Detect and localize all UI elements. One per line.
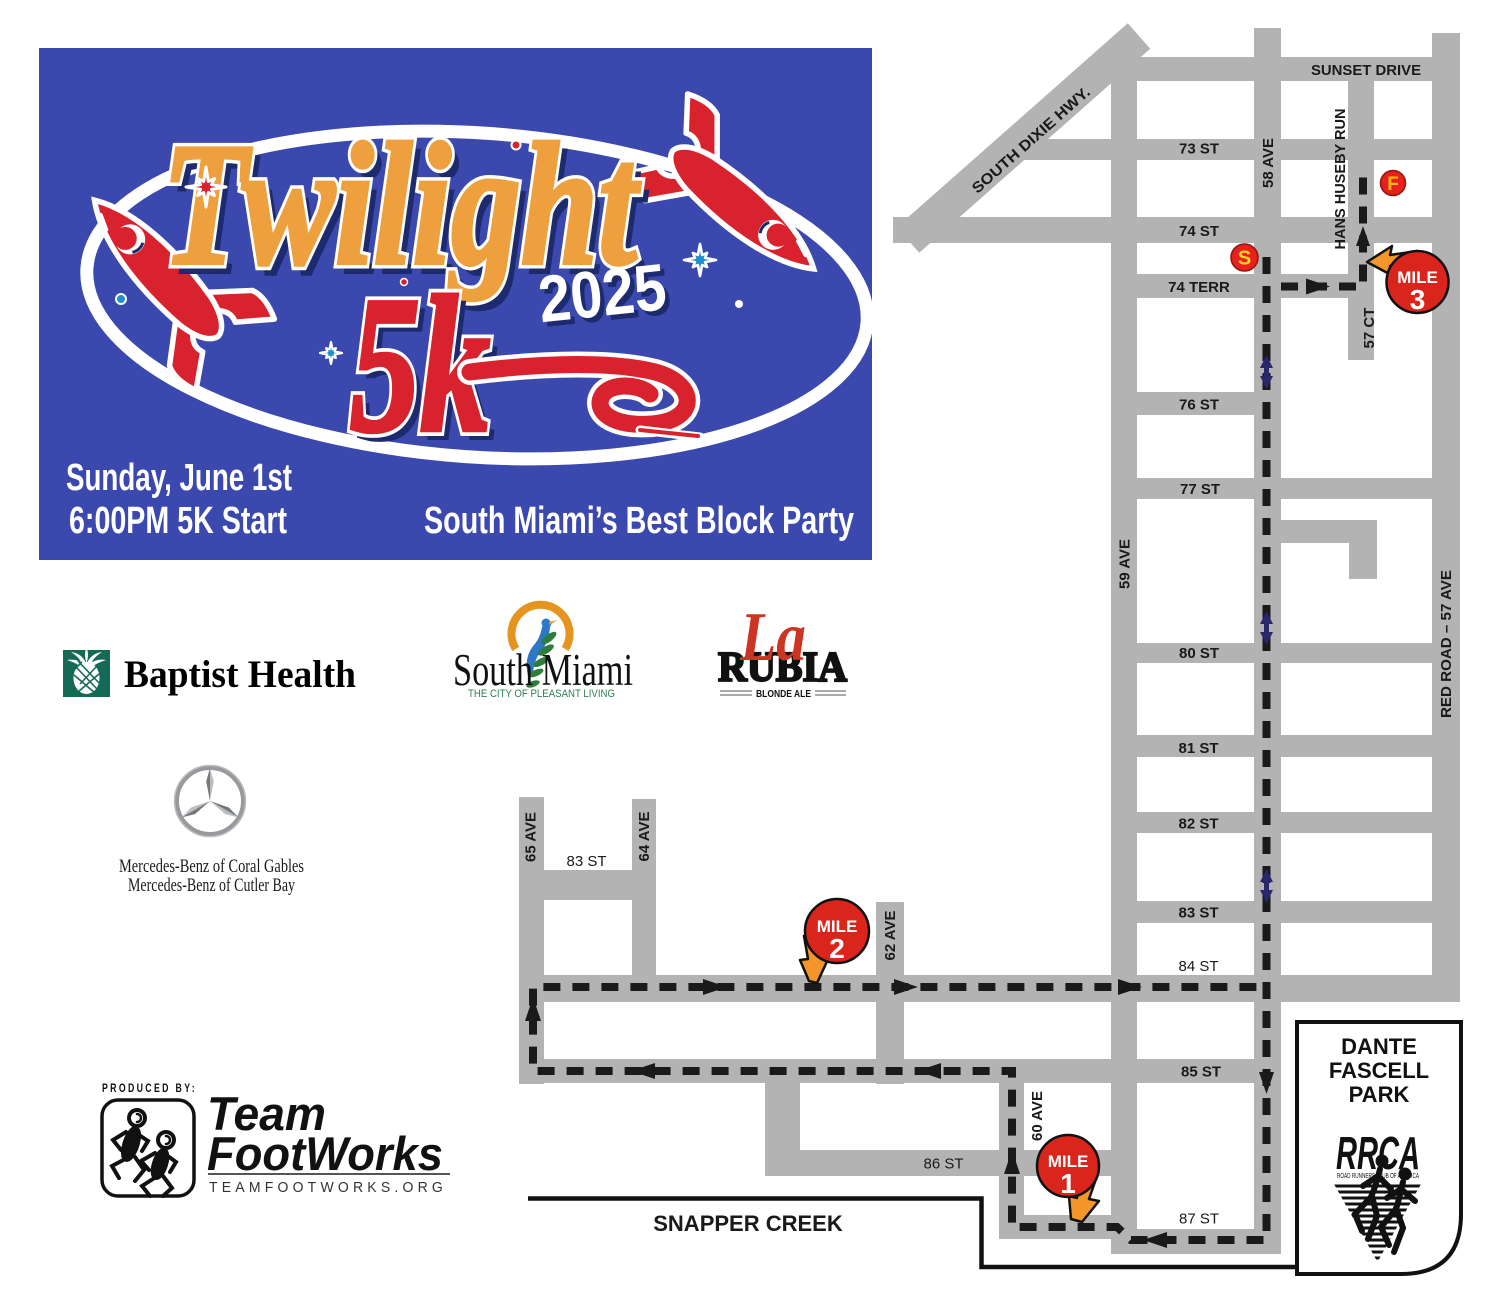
svg-text:2: 2 [829,933,845,964]
svg-text:74 ST: 74 ST [1179,223,1219,240]
svg-text:2025: 2025 [535,249,670,336]
svg-text:SNAPPER CREEK: SNAPPER CREEK [653,1211,843,1236]
svg-text:57 CT: 57 CT [1361,308,1378,349]
svg-text:RED ROAD – 57 AVE: RED ROAD – 57 AVE [1438,570,1455,718]
svg-text:Sunday, June 1st: Sunday, June 1st [66,457,292,499]
svg-text:83 ST: 83 ST [566,853,606,870]
svg-text:PARK: PARK [1349,1082,1410,1107]
svg-text:64 AVE: 64 AVE [636,811,653,861]
svg-text:77 ST: 77 ST [1180,481,1220,498]
svg-text:SUNSET DRIVE: SUNSET DRIVE [1311,62,1421,79]
svg-text:Baptist Health: Baptist Health [124,653,356,696]
svg-text:La: La [739,599,806,676]
svg-text:60 AVE: 60 AVE [1029,1091,1046,1141]
svg-text:1: 1 [1060,1168,1076,1199]
svg-text:58 AVE: 58 AVE [1260,138,1277,188]
svg-text:S: S [1238,248,1251,270]
svg-text:74 TERR: 74 TERR [1168,279,1230,296]
svg-text:PRODUCED BY:: PRODUCED BY: [102,1081,197,1095]
svg-text:82 ST: 82 ST [1178,816,1218,833]
svg-text:87 ST: 87 ST [1179,1211,1219,1228]
svg-text:6:00PM 5K Start: 6:00PM 5K Start [69,500,287,542]
svg-text:73 ST: 73 ST [1179,141,1219,158]
svg-text:62 AVE: 62 AVE [882,910,899,960]
svg-text:80 ST: 80 ST [1179,645,1219,662]
svg-text:THE CITY OF PLEASANT LIVING: THE CITY OF PLEASANT LIVING [468,688,615,700]
svg-text:85 ST: 85 ST [1181,1064,1221,1081]
svg-text:Mercedes-Benz of Coral Gables: Mercedes-Benz of Coral Gables [119,856,304,877]
svg-text:3: 3 [1410,284,1426,315]
svg-text:F: F [1387,174,1399,195]
svg-text:59 AVE: 59 AVE [1117,539,1134,589]
svg-text:TEAMFOOTWORKS.ORG: TEAMFOOTWORKS.ORG [209,1179,447,1196]
svg-text:BLONDE ALE: BLONDE ALE [756,689,811,700]
svg-text:South Miami’s Best Block Party: South Miami’s Best Block Party [424,500,854,542]
svg-text:FootWorks: FootWorks [207,1127,443,1180]
svg-text:76 ST: 76 ST [1179,397,1219,414]
svg-text:DANTE: DANTE [1341,1034,1417,1059]
svg-text:83 ST: 83 ST [1178,905,1218,922]
svg-text:65 AVE: 65 AVE [523,812,540,862]
svg-text:HANS HUSEBY RUN: HANS HUSEBY RUN [1332,109,1349,250]
svg-text:86 ST: 86 ST [923,1156,963,1173]
svg-text:Mercedes-Benz of Cutler Bay: Mercedes-Benz of Cutler Bay [128,875,295,896]
svg-text:81 ST: 81 ST [1178,740,1218,757]
svg-text:FASCELL: FASCELL [1329,1058,1429,1083]
svg-text:84 ST: 84 ST [1178,958,1218,975]
